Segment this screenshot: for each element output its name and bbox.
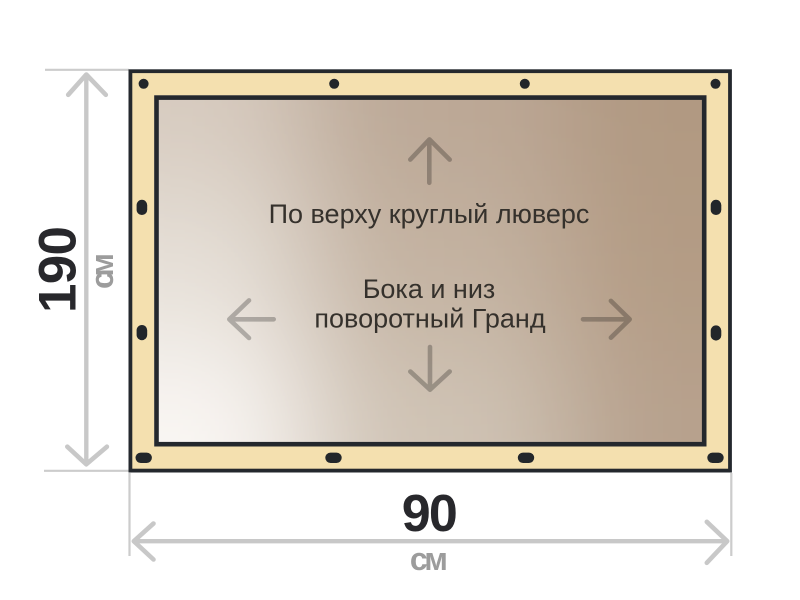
svg-text:см: см: [84, 253, 120, 289]
svg-text:поворотный Гранд: поворотный Гранд: [314, 303, 545, 333]
svg-text:см: см: [410, 541, 448, 577]
svg-text:Бока и низ: Бока и низ: [363, 274, 496, 304]
svg-text:90: 90: [402, 485, 458, 543]
svg-text:190: 190: [29, 226, 88, 313]
svg-text:По верху круглый люверс: По верху круглый люверс: [269, 199, 590, 229]
